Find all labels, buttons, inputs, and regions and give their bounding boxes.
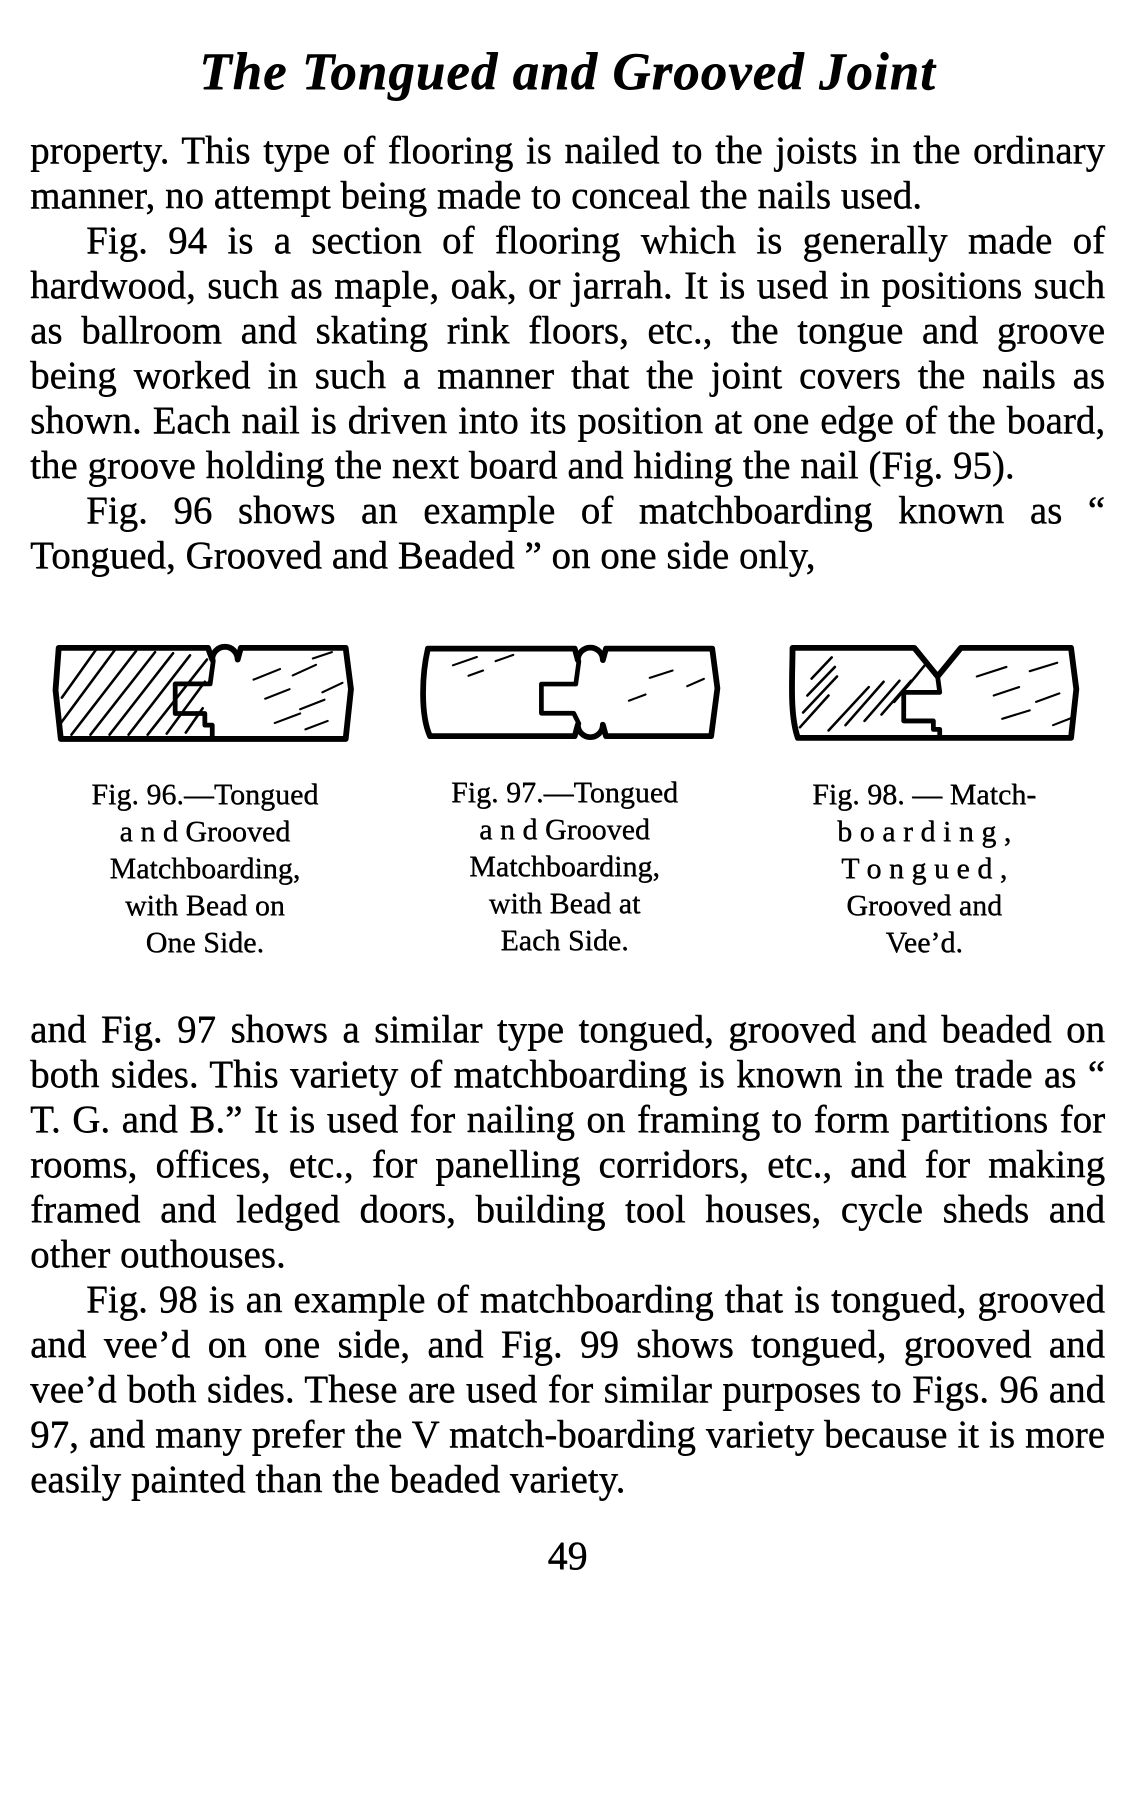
figure-96-caption: Fig. 96.—Tongued a n d Grooved Matchboar… [46,776,364,961]
tongued-grooved-bead-each-side-illustration [406,632,724,752]
caption-line: Each Side. [406,922,724,959]
figure-98-caption: Fig. 98. — Match- b o a r d i n g , T o … [765,776,1083,961]
figure-98: Fig. 98. — Match- b o a r d i n g , T o … [765,632,1083,961]
matchboarding-veed-illustration [765,632,1083,754]
caption-line: Matchboarding, [406,848,724,885]
figure-96: Fig. 96.—Tongued a n d Grooved Matchboar… [46,632,364,961]
figure-97-caption: Fig. 97.—Tongued a n d Grooved Matchboar… [406,774,724,959]
figures-row: Fig. 96.—Tongued a n d Grooved Matchboar… [46,632,1083,961]
caption-line: Fig. 98. — Match- [765,776,1083,813]
caption-line: a n d Grooved [406,811,724,848]
left-board-hatching [61,650,207,735]
caption-line: with Bead at [406,885,724,922]
caption-line: b o a r d i n g , [765,813,1083,850]
paragraph-2: Fig. 94 is a section of flooring which i… [30,218,1105,488]
page-number: 49 [0,1532,1135,1579]
caption-line: Grooved and [765,887,1083,924]
caption-line: Fig. 96.—Tongued [46,776,364,813]
paragraph-4: and Fig. 97 shows a similar type tongued… [30,1007,1105,1277]
tongue-groove-joint-line [175,661,213,739]
lower-text-block: and Fig. 97 shows a similar type tongued… [30,1007,1105,1502]
caption-line: a n d Grooved [46,813,364,850]
caption-line: Fig. 97.—Tongued [406,774,724,811]
caption-line: Vee’d. [765,924,1083,961]
caption-line: Matchboarding, [46,850,364,887]
right-board-hatching [977,663,1072,725]
paragraph-3: Fig. 96 shows an example of matchboardin… [30,488,1105,578]
caption-line: T o n g u e d , [765,850,1083,887]
caption-line: with Bead on [46,887,364,924]
tongue-groove-joint-line [541,661,578,723]
paragraph-5: Fig. 98 is an example of matchboarding t… [30,1277,1105,1502]
upper-text-block: property. This type of flooring is naile… [30,128,1105,578]
page-title: The Tongued and Grooved Joint [0,0,1135,102]
paragraph-1: property. This type of flooring is naile… [30,128,1105,218]
right-board-hatching [254,652,343,729]
tongued-grooved-bead-one-side-illustration [46,632,364,754]
caption-line: One Side. [46,924,364,961]
figure-97: Fig. 97.—Tongued a n d Grooved Matchboar… [406,632,724,961]
book-page: The Tongued and Grooved Joint property. … [0,0,1135,1817]
